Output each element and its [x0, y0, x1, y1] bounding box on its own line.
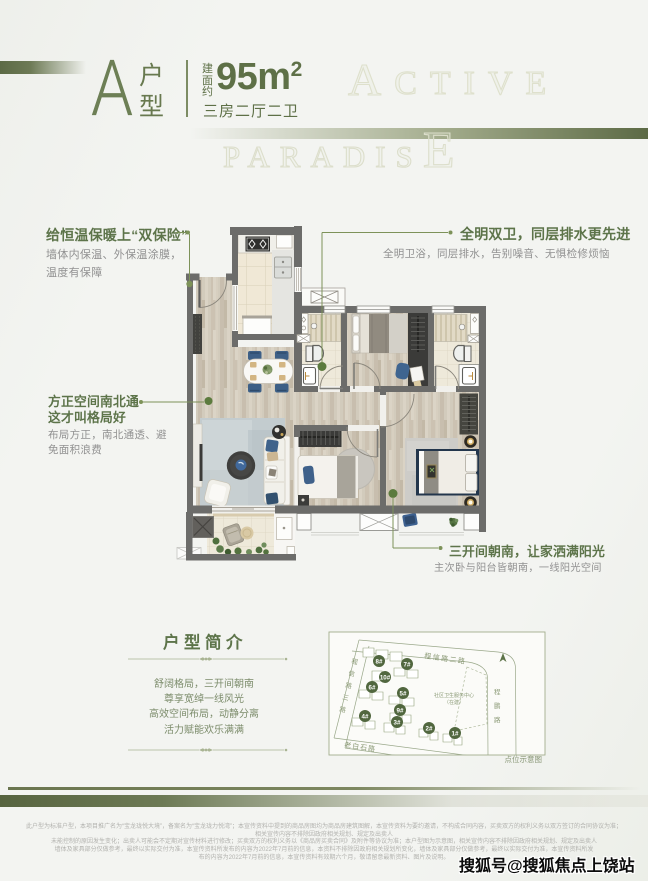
svg-text:点位示意图: 点位示意图 [505, 754, 543, 764]
svg-text:路: 路 [494, 715, 501, 724]
svg-text:鹏: 鹏 [494, 701, 501, 710]
svg-text:社区卫生服务中心: 社区卫生服务中心 [434, 692, 474, 699]
svg-text:7#: 7# [404, 662, 411, 669]
svg-text:8#: 8# [376, 659, 383, 666]
svg-text:5#: 5# [400, 691, 407, 698]
svg-text:6#: 6# [369, 685, 376, 692]
svg-text:程: 程 [494, 687, 501, 696]
svg-text:（在建）: （在建） [444, 699, 464, 706]
svg-text:9#: 9# [397, 708, 404, 715]
svg-text:10#: 10# [380, 675, 391, 682]
svg-text:4#: 4# [362, 714, 369, 721]
svg-text:1#: 1# [452, 731, 459, 738]
svg-text:3#: 3# [394, 720, 401, 727]
svg-text:2#: 2# [426, 726, 433, 733]
